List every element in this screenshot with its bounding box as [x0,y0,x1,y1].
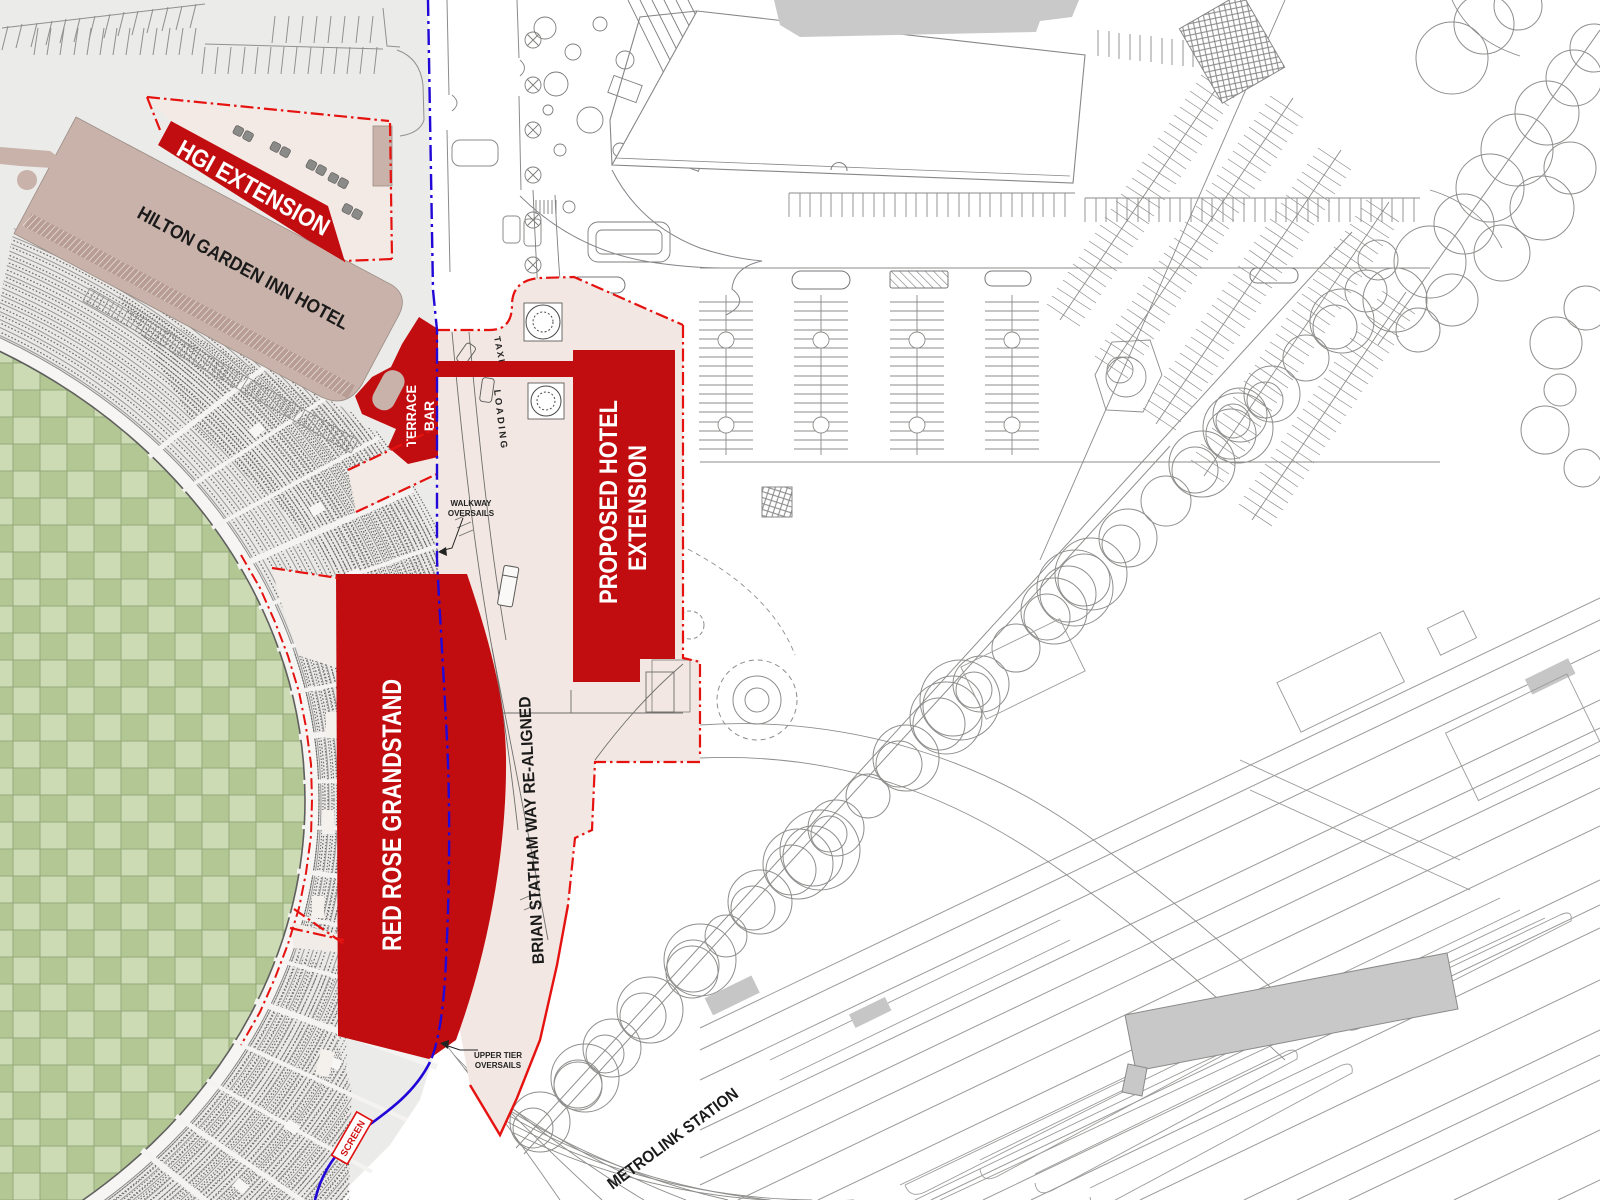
svg-text:WALKWAY: WALKWAY [450,499,492,508]
svg-text:PROPOSED HOTEL: PROPOSED HOTEL [595,400,623,604]
svg-text:UPPER TIER: UPPER TIER [474,1051,522,1060]
svg-text:EXTENSION: EXTENSION [624,445,652,571]
svg-text:BAR: BAR [421,401,437,431]
svg-text:RED ROSE GRANDSTAND: RED ROSE GRANDSTAND [377,679,407,951]
svg-text:OVERSAILS: OVERSAILS [448,509,495,518]
svg-text:OVERSAILS: OVERSAILS [475,1061,522,1070]
